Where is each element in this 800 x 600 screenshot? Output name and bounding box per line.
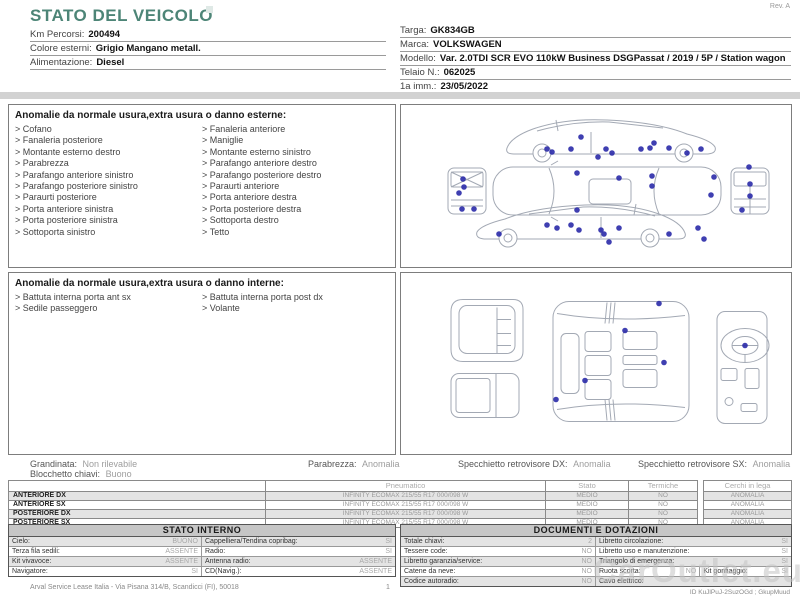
exterior-anomalies-col-right: Fanaleria anteriore Maniglie Montante es… [202,124,389,238]
table-row: ANTERIORE SX INFINITY ECOMAX 215/55 R17 … [9,501,698,510]
summary-specchietto-sx: Specchietto retrovisore SX: Anomalia [638,459,790,469]
table-row: Tessere code:NO Libretto uso e manutenzi… [401,547,791,557]
anomaly-item: Sottoporta destro [202,215,389,226]
anomaly-item: Parafango anteriore sinistro [15,170,202,181]
exterior-anomalies-col-left: Cofano Fanaleria posteriore Montante est… [15,124,202,238]
anomaly-item: Parafango anteriore destro [202,158,389,169]
summary-blocchetto-chiavi: Blocchetto chiavi: Buono [30,469,132,479]
exterior-damage-diagram-box [400,104,792,268]
field-value: 062025 [444,67,476,78]
table-row: POSTERIORE DX INFINITY ECOMAX 215/55 R17… [9,510,698,519]
exterior-damage-markers [456,134,753,245]
field-value: Var. 2.0TDI SCR EVO 110kW Business DSGPa… [440,53,786,64]
alloy-wheels-table: Cerchi in lega ANOMALIA ANOMALIA ANOMALI… [703,480,792,528]
tires-header-row: Pneumatico Stato Termiche [9,481,698,492]
table-row: ANTERIORE DX INFINITY ECOMAX 215/55 R17 … [9,492,698,501]
revision-label: Rev. A [770,3,790,10]
field-label: Km Percorsi: [30,29,84,40]
anomaly-item: Sedile passeggero [15,303,202,314]
footer-address: Arval Service Lease Italia - Via Pisana … [30,584,239,591]
table-row: ANOMALIA [704,510,792,519]
anomaly-item: Montante esterno sinistro [202,147,389,158]
table-row: Totale chiavi:2 Libretto circolazione:SI [401,537,791,547]
exterior-anomalies-title: Anomalie da normale usura,extra usura o … [9,105,395,124]
summary-section: Grandinata: Non rilevabile Parabrezza: A… [0,459,800,479]
anomaly-item: Volante [202,303,389,314]
field-value: 200494 [88,29,120,40]
field-value: 23/05/2022 [440,81,488,92]
field-label: Alimentazione: [30,57,92,68]
vehicle-info-right: Targa: GK834GB Marca: VOLKSWAGEN Modello… [400,24,791,94]
anomaly-item: Maniglie [202,135,389,146]
field-value: Diesel [96,57,124,68]
page-title: STATO DEL VEICOLO [30,6,213,26]
summary-grandinata: Grandinata: Non rilevabile [30,459,137,469]
stato-interno-title: STATO INTERNO [9,525,395,537]
anomaly-item: Paraurti posteriore [15,192,202,203]
anomaly-item: Porta posteriore sinistra [15,215,202,226]
field-label: Colore esterni: [30,43,92,54]
tires-header-pneumatico: Pneumatico [266,481,546,492]
table-row: Codice autoradio:NO Cavo elettrico: [401,577,791,586]
table-row: ANOMALIA [704,492,792,501]
anomaly-item: Porta posteriore destra [202,204,389,215]
field-label: Marca: [400,39,429,50]
anomaly-item: Fanaleria posteriore [15,135,202,146]
vehicle-info-left: Km Percorsi: 200494 Colore esterni: Grig… [30,28,386,70]
anomaly-item: Battuta interna porta ant sx [15,292,202,303]
tires-table: Pneumatico Stato Termiche ANTERIORE DX I… [8,480,698,528]
field-value: Grigio Mangano metall. [96,43,201,54]
field-marca: Marca: VOLKSWAGEN [400,38,791,52]
vehicle-report-page: STATO DEL VEICOLO Rev. A Km Percorsi: 20… [0,0,800,600]
anomaly-item: Fanaleria anteriore [202,124,389,135]
tires-header-termiche: Termiche [629,481,698,492]
table-row: Navigatore:SI CD(Navig.):ASSENTE [9,567,395,576]
anomaly-item: Porta anteriore sinistra [15,204,202,215]
tires-header-row: Cerchi in lega [704,481,792,492]
field-value: VOLKSWAGEN [433,39,502,50]
documenti-dotazioni-table: DOCUMENTI E DOTAZIONI Totale chiavi:2 Li… [400,524,792,587]
field-label: Modello: [400,53,436,64]
summary-specchietto-dx: Specchietto retrovisore DX: Anomalia [458,459,611,469]
interior-cabin-diagram [401,273,791,454]
field-targa: Targa: GK834GB [400,24,791,38]
anomaly-item: Montante esterno destro [15,147,202,158]
tires-header-empty [9,481,266,492]
field-km: Km Percorsi: 200494 [30,28,386,42]
table-row: Libretto garanzia/service:NO Triangolo d… [401,557,791,567]
documenti-title: DOCUMENTI E DOTAZIONI [401,525,791,537]
anomaly-item: Sottoporta sinistro [15,227,202,238]
exterior-car-diagram [401,105,791,267]
wheels-header: Cerchi in lega [704,481,792,492]
field-colore: Colore esterni: Grigio Mangano metall. [30,42,386,56]
stato-interno-table: STATO INTERNO Cielo:BUONO Cappelliera/Te… [8,524,396,577]
anomaly-item: Paraurti anteriore [202,181,389,192]
interior-anomalies-box: Anomalie da normale usura,extra usura o … [8,272,396,455]
anomaly-item: Porta anteriore destra [202,192,389,203]
field-label: 1a imm.: [400,81,436,92]
tires-header-stato: Stato [546,481,629,492]
field-value: GK834GB [430,25,474,36]
interior-damage-diagram-box [400,272,792,455]
title-marker-square [206,6,213,13]
anomaly-item: Parafango posteriore destro [202,170,389,181]
section-divider-bar [0,92,800,99]
field-modello: Modello: Var. 2.0TDI SCR EVO 110kW Busin… [400,52,791,66]
field-telaio: Telaio N.: 062025 [400,66,791,80]
exterior-anomalies-box: Anomalie da normale usura,extra usura o … [8,104,396,268]
interior-anomalies-col-left: Battuta interna porta ant sx Sedile pass… [15,292,202,315]
summary-parabrezza: Parabrezza: Anomalia [308,459,400,469]
anomaly-item: Battuta interna porta post dx [202,292,389,303]
anomaly-item: Cofano [15,124,202,135]
footer-document-id: ID KuJlPuJ-2SuzOGd ; GkupMuud [690,589,790,596]
footer-page-number: 1 [386,584,390,591]
anomaly-item: Parafango posteriore sinistro [15,181,202,192]
table-row: Catene da neve:NO Ruota scorta:NO Kit go… [401,567,791,577]
field-label: Telaio N.: [400,67,440,78]
field-label: Targa: [400,25,426,36]
interior-anomalies-col-right: Battuta interna porta post dx Volante [202,292,389,315]
anomaly-item: Tetto [202,227,389,238]
table-row: Terza fila sedili:ASSENTE Radio:SI [9,547,395,557]
interior-anomalies-title: Anomalie da normale usura,extra usura o … [9,273,395,292]
field-alimentazione: Alimentazione: Diesel [30,56,386,70]
table-row: Cielo:BUONO Cappelliera/Tendina copribag… [9,537,395,547]
table-row: Kit vivavoce:ASSENTE Antenna radio:ASSEN… [9,557,395,567]
anomaly-item: Parabrezza [15,158,202,169]
table-row: ANOMALIA [704,501,792,510]
